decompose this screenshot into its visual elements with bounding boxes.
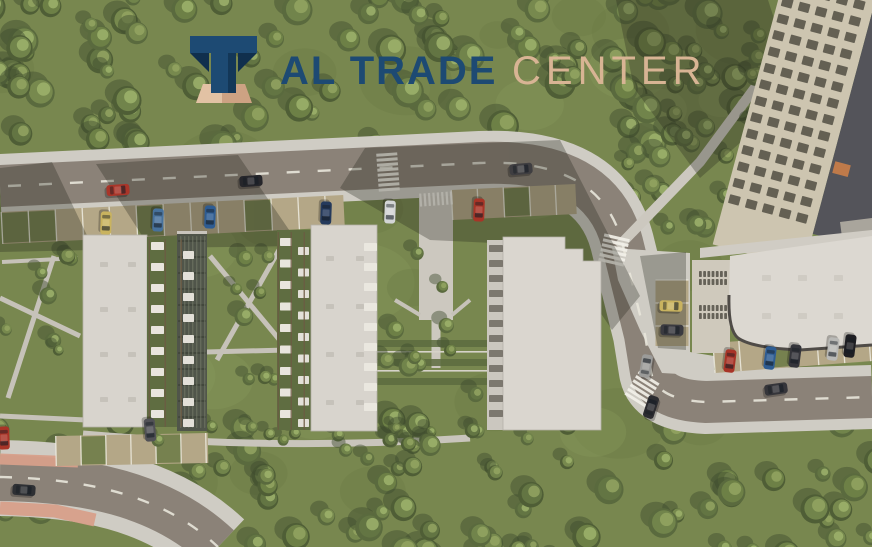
building-d-facade-bands [489, 410, 503, 417]
roof-vents-c [356, 400, 364, 405]
roof-vents-complex [834, 275, 843, 281]
north-forest-tree [37, 82, 50, 95]
terrace-dividers-c [304, 232, 306, 430]
car-parked-red-1-rear-window [475, 202, 483, 206]
south-lawn-trees-tree [526, 434, 532, 440]
south-lawn-trees-tree [344, 445, 350, 451]
roof-vents-c [326, 352, 334, 357]
left-courtyard-trees-shadow [46, 338, 57, 348]
south-forest-tree [293, 527, 305, 539]
garage-wing-louvers-2 [716, 313, 719, 319]
garage-wing-louvers-1 [724, 279, 727, 285]
roof-vents-a [100, 307, 108, 312]
south-forest-tree [729, 482, 741, 494]
terrace-boxes-c1 [280, 367, 292, 375]
roof-vents-complex [834, 313, 843, 319]
garage-wing-louvers-1 [720, 279, 723, 285]
car-parked-yellow-1-roof [102, 219, 109, 226]
garage-wing-louvers-1 [699, 279, 702, 285]
terrace-dividers-c [278, 232, 280, 430]
car-black-main-road-rear-window [243, 177, 247, 185]
terrace-boxes-a1 [151, 263, 164, 271]
promenade-trees-tree [445, 320, 452, 327]
logo-primary-text: AL TRADE [280, 49, 497, 93]
car-parked-yellow-1-windshield [102, 226, 110, 231]
north-forest-tree [456, 99, 467, 110]
parking-sw-divider [81, 436, 82, 466]
garage-wing-louvers-1 [720, 271, 723, 277]
car-parked-red-edge [0, 424, 10, 449]
east-lawn-trees-tree [694, 218, 703, 227]
south-forest-tree [584, 527, 597, 540]
roof-vents-c [326, 304, 334, 309]
building-d-facade-bands [489, 305, 503, 312]
car-red-main-road-rear-window [110, 186, 114, 194]
balcony-boxes-c-east [364, 383, 377, 391]
south-forest-tree [490, 536, 500, 546]
car-parked-dark-1-roof [668, 326, 675, 333]
terrace-boxes-a1 [151, 389, 164, 397]
terrace-boxes-c1 [280, 410, 292, 418]
hedgerow-trees-tree [210, 422, 216, 428]
roof-vents-a [128, 352, 136, 357]
east-grove-tree [649, 179, 657, 187]
car-parked-white [382, 198, 396, 223]
left-courtyard-trees-tree [40, 269, 46, 275]
south-forest-tree [839, 502, 849, 512]
building-d-facade-bands [489, 395, 503, 402]
north-forest-tree [439, 13, 447, 21]
parking-sw-divider [181, 434, 182, 464]
car-parked-white-roof [386, 208, 393, 215]
terrace-boxes-a2 [183, 398, 194, 406]
car-red-main-road-roof [114, 186, 121, 193]
garage-wing-louvers-2 [712, 313, 715, 319]
north-forest-tree [124, 90, 137, 103]
car-parked-dark-1 [658, 324, 683, 338]
building-d-facade-bands [489, 380, 503, 387]
south-forest-tree [428, 524, 437, 533]
car-parked-yellow-1 [98, 209, 112, 234]
car-parked-white-2-roof [829, 345, 837, 353]
building-b-mullions [196, 236, 197, 428]
terrace-dividers-a [181, 239, 183, 427]
terrace-boxes-a1 [151, 326, 164, 334]
logo-icon-column-shade [228, 53, 236, 93]
garage-wing-louvers-2 [724, 305, 727, 311]
north-forest-tree [436, 36, 450, 50]
mid-courtyard-trees-tree [259, 288, 265, 294]
car-dark-sw-road-roof [20, 486, 27, 493]
terrace-dividers-a [165, 239, 167, 427]
promenade-trees-tree [474, 389, 481, 396]
south-forest-tree [662, 454, 671, 463]
building-d-facade-bands [489, 335, 503, 342]
terrace-boxes-a1 [151, 368, 164, 376]
car-parked-red-1-roof [475, 206, 482, 213]
car-parked-yellow-1-rear-window [102, 215, 110, 219]
car-red-main-road [104, 184, 130, 199]
north-forest-tree [366, 6, 376, 16]
balcony-boxes-c-east [364, 243, 377, 251]
hedgerow-trees-tree [268, 430, 273, 435]
car-parked-white-windshield [386, 215, 394, 220]
building-d-roof [503, 237, 601, 430]
building-a-roof [83, 235, 147, 427]
terrace-boxes-a1 [151, 347, 164, 355]
car-parked-blue-2-rear-window [206, 209, 214, 213]
garage-wing-louvers-2 [716, 305, 719, 311]
terrace-dividers-a [149, 239, 151, 427]
promenade-trees-tree [393, 323, 401, 331]
north-forest-tree [16, 79, 26, 89]
east-grove-tree [657, 149, 667, 159]
parking-sw-divider [131, 435, 132, 465]
car-parked-red-edge-roof [0, 434, 7, 441]
promenade-trees-tree [385, 355, 392, 362]
roof-vents-c [356, 352, 364, 357]
south-lawn-trees-tree [366, 454, 372, 460]
car-parked-blue-2-roof [206, 213, 213, 220]
balcony-boxes-c-east [364, 263, 377, 271]
terrace-boxes-a2 [183, 356, 194, 364]
south-forest-tree [771, 471, 782, 482]
north-forest-tree [97, 29, 108, 40]
garage-wing-louvers-1 [707, 279, 710, 285]
south-forest-tree [834, 531, 844, 541]
car-black-main-road-roof [247, 177, 254, 184]
parking-sw-divider [106, 435, 107, 465]
mid-courtyard-trees-tree [247, 375, 253, 381]
terrace-boxes-c1 [280, 389, 292, 397]
terrace-boxes-c1 [280, 238, 292, 418]
garage-wing-louvers-2 [707, 313, 710, 319]
north-forest-tree [134, 25, 144, 35]
building-d-facade-bands [489, 320, 503, 327]
car-gray-main-road-rear-window [513, 165, 517, 173]
south-forest-tree [253, 537, 263, 547]
balcony-boxes-c-east [364, 303, 377, 311]
building-d-facade-bands [489, 290, 503, 297]
north-forest-tree [172, 64, 179, 71]
south-forest-tree [706, 501, 715, 510]
hedgerow-trees-tree [395, 425, 400, 430]
car-parked-gray-sw-rear-window [145, 422, 153, 426]
building-d-facade-bands [489, 275, 503, 282]
garage-wing-louvers-2 [720, 313, 723, 319]
mid-courtyard-trees-tree [235, 285, 240, 290]
north-forest-tree [515, 28, 523, 36]
promenade-trees-tree [416, 249, 422, 255]
terrace-boxes-a1 [151, 242, 164, 418]
car-dark-sw-road [10, 484, 36, 499]
hedgerow-trees-tree [471, 425, 478, 432]
terrace-boxes-a2 [183, 314, 194, 322]
masterplan-render: AL TRADE CENTER [0, 0, 872, 547]
car-parked-dark-1-windshield [675, 326, 680, 334]
roof-vents-a [128, 397, 136, 402]
balcony-boxes-c-east [364, 283, 377, 291]
hedgerow-trees-tree [250, 423, 256, 429]
terrace-boxes-c1 [280, 324, 292, 332]
south-forest-tree [220, 462, 228, 470]
garage-wing-louvers-2 [712, 305, 715, 311]
garage-wing-louvers-1 [724, 271, 727, 277]
car-dark-sw-road-rear-window [16, 485, 20, 493]
car-parked-blue-1-rear-window [154, 212, 162, 216]
terrace-boxes-a1 [151, 284, 164, 292]
car-parked-yellow-2-windshield [674, 302, 679, 310]
car-gray-main-road-roof [517, 165, 525, 173]
north-forest-tree [105, 109, 113, 117]
north-forest-tree [500, 115, 514, 129]
garage-wing-louvers-2 [699, 313, 702, 319]
south-forest-tree [401, 499, 413, 511]
garage-wing-louvers-1 [716, 271, 719, 277]
masterplan-svg: AL TRADE CENTER [0, 0, 872, 547]
north-forest-tree [17, 39, 29, 51]
south-lawn-trees-tree [407, 439, 414, 446]
north-forest-tree [182, 1, 194, 13]
car-parked-blue-1-windshield [154, 223, 162, 228]
mid-courtyard-trees-tree [243, 253, 251, 261]
south-forest-tree [366, 518, 378, 530]
parking-sw-divider [56, 436, 57, 466]
hedgerow-trees-tree [294, 429, 299, 434]
east-grove-tree [666, 222, 673, 229]
building-b-mullions [200, 236, 201, 428]
hedgerow-trees-tree [157, 436, 163, 442]
south-lawn-trees-tree [493, 468, 500, 475]
promenade-trees-tree [413, 353, 419, 359]
balcony-boxes-c-east [364, 403, 377, 411]
south-forest-tree [264, 471, 272, 479]
building-d-facade-bands [489, 365, 503, 372]
north-forest-tree [294, 0, 308, 13]
south-forest-tree [566, 457, 572, 463]
mid-courtyard-trees-tree [267, 252, 273, 258]
roof-vents-a [128, 262, 136, 267]
car-parked-blue-2 [202, 203, 216, 228]
terrace-boxes-a2 [183, 335, 194, 343]
car-parked-black-roof [846, 342, 854, 350]
car-parked-red-2-roof [726, 357, 734, 365]
car-parked-navy [318, 199, 332, 224]
south-forest-tree [477, 527, 488, 538]
roof-vents-a [100, 262, 108, 267]
car-parked-blue-2-windshield [206, 220, 214, 225]
car-silver-east-road-roof [642, 362, 650, 370]
roof-vents-c [326, 256, 334, 261]
garage-wing-louvers-1 [712, 279, 715, 285]
garage-wing-louvers-1 [699, 271, 702, 277]
north-forest-tree [296, 98, 309, 111]
car-parked-red-edge-windshield [0, 441, 8, 446]
north-forest-tree [89, 20, 96, 27]
terrace-boxes-a1 [151, 410, 164, 418]
north-forest-tree [346, 32, 357, 43]
balcony-boxes-c-east [364, 343, 377, 351]
terrace-boxes-c1 [280, 238, 292, 246]
roof-vents-c [356, 256, 364, 261]
car-parked-red-1-windshield [475, 213, 483, 218]
building-d-facade-bands [489, 350, 503, 357]
garage-wing-louvers-2 [720, 305, 723, 311]
south-forest-tree [384, 475, 394, 485]
garage-wing-louvers-2 [707, 305, 710, 311]
terrace-boxes-a2 [183, 377, 194, 385]
left-courtyard-trees-tree [65, 251, 72, 258]
terrace-boxes-a2 [183, 272, 194, 280]
south-forest-tree [676, 510, 683, 517]
garage-wing-louvers-1 [712, 271, 715, 277]
roof-vents-c [356, 304, 364, 309]
north-forest-tree [95, 131, 106, 142]
south-forest-tree [528, 486, 540, 498]
balcony-boxes-c-east [364, 323, 377, 331]
garage-wing-louvers-1 [703, 279, 706, 285]
car-parked-red-edge-rear-window [0, 430, 8, 434]
north-forest-tree [134, 134, 146, 146]
hedgerow-trees-shadow [383, 416, 394, 425]
garage-wing-louvers-1 [703, 271, 706, 277]
south-forest-tree [606, 479, 619, 492]
car-gray-main-road [507, 163, 533, 178]
left-courtyard-trees-tree [57, 347, 62, 352]
roof-vents-a [100, 397, 108, 402]
north-forest-tree [18, 126, 29, 137]
roof-vents-complex [762, 313, 771, 319]
left-courtyard-trees-tree [46, 290, 54, 298]
terrace-boxes-a2 [183, 251, 194, 259]
south-forest-tree [812, 499, 825, 512]
terrace-boxes-a1 [151, 242, 164, 250]
hedgerow-trees-tree [282, 436, 287, 441]
car-parked-yellow-2-roof [667, 302, 674, 309]
south-forest-tree [851, 478, 864, 491]
roof-vents-a [128, 307, 136, 312]
car-parked-yellow-2 [657, 300, 682, 314]
roof-vents-complex [798, 313, 807, 319]
garage-wing-louvers-2 [724, 313, 727, 319]
terrace-boxes-c1 [280, 303, 292, 311]
north-forest-tree [273, 33, 281, 41]
balcony-boxes-c-east [364, 243, 377, 411]
building-d-facade-bands [489, 260, 503, 267]
garage-wing-louvers-1 [707, 271, 710, 277]
promenade-trees-tree [441, 283, 446, 288]
terrace-boxes-c1 [280, 346, 292, 354]
car-parked-dark-1-rear-window [664, 326, 668, 334]
car-parked-blue-3-roof [766, 354, 774, 362]
roof-vents-complex [798, 275, 807, 281]
east-grove-tree [627, 159, 633, 165]
car-dark-se-road-roof [772, 385, 780, 393]
parking-sw [56, 448, 208, 451]
north-forest-tree [417, 8, 426, 17]
car-parked-yellow-2-rear-window [663, 302, 667, 310]
south-forest-tree [660, 513, 673, 526]
north-forest-tree [252, 108, 265, 121]
roof-vents-a [100, 352, 108, 357]
south-forest-tree [196, 466, 204, 474]
car-parked-white-rear-window [386, 204, 394, 208]
south-lawn-trees-tree [428, 438, 438, 448]
garage-wing-louvers-1 [716, 279, 719, 285]
car-black-main-road [237, 175, 263, 190]
car-parked-dark-2-roof [791, 352, 799, 360]
garage-wing-louvers-2 [703, 313, 706, 319]
roof-vents-complex [762, 275, 771, 281]
building-d-facade-bands [489, 245, 503, 252]
terrace-boxes-c1 [280, 260, 292, 268]
car-parked-blue-1 [150, 206, 164, 231]
parking-sw-divider [206, 433, 207, 463]
south-forest-tree [325, 510, 333, 518]
north-forest-tree [535, 1, 547, 13]
hedgerow-trees-tree [337, 431, 343, 437]
car-parked-navy-windshield [322, 216, 330, 221]
building-b-mullions [204, 236, 205, 428]
terrace-boxes-a2 [183, 251, 194, 427]
car-parked-navy-rear-window [322, 205, 330, 209]
terrace-dividers-c [291, 232, 293, 430]
logo-secondary-text: CENTER [512, 49, 706, 93]
garage-wing-louvers-2 [703, 305, 706, 311]
roof-vents-c [326, 400, 334, 405]
promenade-trees-tree [449, 346, 454, 351]
garage-wing-louvers-2 [699, 305, 702, 311]
balcony-boxes-c-east [364, 363, 377, 371]
south-forest-tree [821, 468, 828, 475]
terrace-boxes-a1 [151, 305, 164, 313]
north-forest-tree [106, 66, 112, 72]
car-parked-gray-sw [141, 416, 156, 442]
car-parked-navy-roof [322, 209, 329, 216]
car-parked-blue-1-roof [154, 216, 161, 223]
south-lawn-trees-tree [410, 460, 419, 469]
terrace-boxes-a2 [183, 293, 194, 301]
south-forest-tree [380, 507, 387, 514]
mid-courtyard-trees-tree [242, 310, 250, 318]
terrace-boxes-c1 [280, 281, 292, 289]
logo-icon-beam [190, 36, 257, 53]
terrace-boxes-a2 [183, 419, 194, 427]
left-courtyard-trees-tree [4, 325, 10, 331]
car-parked-red-1 [471, 196, 485, 221]
north-forest-tree [423, 102, 433, 112]
car-parked-gray-sw-roof [146, 426, 154, 434]
mid-courtyard-trees-tree [263, 373, 269, 379]
